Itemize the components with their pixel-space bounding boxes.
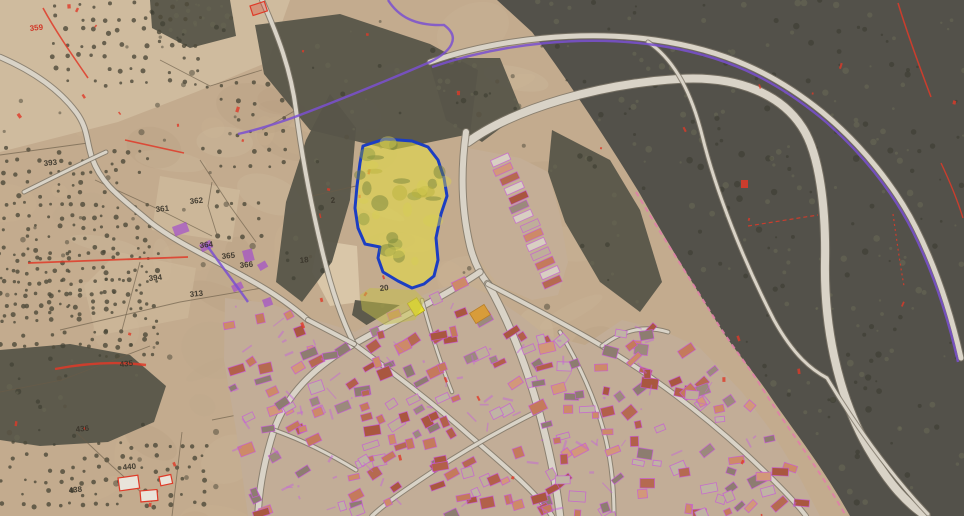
tree-dot [544, 304, 550, 310]
olive-tree-dot [169, 445, 172, 448]
building [377, 330, 385, 339]
olive-tree-dot [5, 304, 9, 308]
olive-tree-dot [92, 6, 95, 9]
scrub-speckle [839, 464, 846, 471]
olive-tree-dot [58, 290, 61, 293]
scrub-speckle [703, 4, 706, 7]
olive-tree-dot [192, 456, 197, 461]
scrub-speckle [862, 499, 868, 505]
olive-tree-dot [104, 170, 107, 173]
scrub-speckle [864, 84, 869, 89]
olive-tree-dot [119, 441, 122, 444]
olive-tree-dot [132, 18, 137, 23]
olive-tree-dot [151, 505, 156, 510]
scrub-speckle [717, 127, 720, 130]
urban-cadastral-line [691, 504, 692, 508]
olive-tree-dot [14, 293, 17, 296]
olive-tree-dot [47, 300, 51, 304]
tree-dot [463, 271, 466, 274]
olive-tree-dot [81, 226, 85, 230]
parcel-vegetation-blotch [372, 211, 380, 220]
olive-tree-dot [144, 16, 148, 20]
olive-tree-dot [80, 202, 85, 207]
scrub-speckle [709, 211, 715, 217]
olive-tree-dot [118, 466, 122, 470]
olive-tree-dot [105, 355, 108, 358]
parcel-vegetation-blotch [392, 185, 407, 201]
scrub-speckle [918, 404, 922, 408]
scrub-speckle [633, 142, 637, 146]
building [615, 329, 627, 338]
scrub-speckle [904, 256, 907, 259]
olive-tree-dot [13, 172, 17, 176]
olive-tree-dot [105, 299, 110, 304]
scrub-speckle [590, 261, 595, 266]
scrub-speckle [697, 164, 704, 171]
scrub-speckle [882, 190, 885, 193]
olive-tree-dot [80, 45, 83, 48]
scrub-speckle [344, 79, 348, 83]
tree-dot [61, 253, 65, 257]
olive-tree-dot [282, 160, 286, 164]
olive-tree-dot [83, 456, 87, 460]
scrub-speckle [794, 0, 801, 6]
olive-tree-dot [142, 337, 147, 342]
scrub-speckle [854, 381, 857, 384]
olive-tree-dot [135, 289, 138, 292]
olive-tree-dot [199, 16, 202, 19]
olive-tree-dot [73, 305, 78, 310]
scrub-speckle [880, 128, 886, 134]
olive-tree-dot [217, 149, 222, 154]
olive-tree-dot [23, 201, 26, 204]
olive-tree-dot [94, 453, 98, 457]
building [553, 437, 561, 444]
olive-tree-dot [185, 2, 189, 6]
olive-tree-dot [105, 233, 110, 238]
olive-tree-dot [97, 442, 100, 445]
scrub-speckle [646, 66, 650, 70]
olive-tree-dot [2, 245, 6, 249]
scrub-speckle [876, 388, 882, 394]
olive-tree-dot [116, 252, 120, 256]
urban-cadastral-line [527, 462, 539, 463]
tree-dot [467, 266, 472, 271]
scrub-speckle [917, 149, 921, 153]
olive-tree-dot [27, 214, 31, 218]
olive-tree-dot [201, 502, 206, 507]
scrub-speckle [932, 243, 937, 248]
scrub-speckle [193, 21, 197, 25]
olive-tree-dot [11, 456, 15, 460]
olive-tree-dot [68, 162, 72, 166]
scrub-speckle [833, 2, 839, 8]
scrub-speckle [875, 380, 877, 382]
olive-tree-dot [72, 237, 75, 240]
red-tick-mark [302, 50, 304, 53]
scrub-speckle [607, 279, 609, 281]
tree-dot [167, 354, 173, 360]
olive-tree-dot [138, 171, 141, 174]
parcel-vegetation-blotch [386, 232, 398, 243]
olive-tree-dot [52, 345, 56, 349]
scrub-speckle [771, 189, 777, 195]
scrub-speckle [776, 149, 782, 155]
parcel-label: 435 [119, 359, 134, 369]
tree-dot [131, 217, 135, 221]
scrub-speckle [856, 324, 859, 327]
scrub-speckle [857, 26, 860, 29]
scrub-speckle [949, 342, 951, 344]
tree-dot [125, 45, 128, 48]
scrub-speckle [842, 67, 849, 74]
scrub-speckle [636, 100, 639, 103]
olive-tree-dot [145, 302, 148, 305]
olive-tree-dot [133, 313, 137, 317]
olive-tree-dot [259, 234, 263, 238]
olive-tree-dot [155, 341, 159, 345]
olive-tree-dot [60, 469, 65, 474]
scrub-speckle [863, 121, 868, 126]
scrub-speckle [689, 203, 695, 209]
scrub-speckle [930, 143, 935, 148]
scrub-speckle [36, 399, 40, 403]
scrub-speckle [325, 63, 330, 68]
scrub-speckle [176, 37, 178, 39]
olive-tree-dot [168, 71, 171, 74]
olive-tree-dot [141, 265, 144, 268]
scrub-speckle [940, 22, 942, 24]
scrub-speckle [160, 21, 165, 26]
scrub-speckle [828, 416, 831, 419]
olive-tree-dot [2, 228, 5, 231]
parcel-vegetation-blotch [362, 181, 371, 195]
scrub-speckle [642, 186, 646, 190]
red-tick-mark [812, 92, 814, 94]
olive-tree-dot [37, 281, 41, 285]
scrub-speckle [924, 428, 930, 434]
red-tick-mark [149, 503, 152, 507]
scrub-speckle [901, 83, 906, 88]
scrub-speckle [445, 78, 451, 84]
scrub-speckle [910, 486, 913, 489]
red-outlined-building [118, 475, 140, 491]
scrub-speckle [508, 81, 510, 83]
scrub-speckle [151, 11, 155, 15]
olive-tree-dot [71, 466, 75, 470]
scrub-speckle [443, 90, 446, 93]
olive-tree-dot [53, 14, 57, 18]
olive-tree-dot [137, 247, 140, 250]
scrub-speckle [764, 105, 770, 111]
tree-dot [213, 429, 219, 435]
olive-tree-dot [57, 150, 62, 155]
olive-tree-dot [79, 279, 83, 283]
scrub-speckle [791, 235, 795, 239]
olive-tree-dot [78, 190, 82, 194]
olive-tree-dot [14, 302, 18, 306]
scrub-speckle [691, 129, 697, 135]
tree-dot [63, 405, 67, 409]
scrub-speckle [686, 157, 693, 164]
scrub-speckle [775, 236, 777, 238]
olive-tree-dot [190, 444, 194, 448]
tree-dot [161, 46, 164, 49]
scrub-speckle [830, 397, 836, 403]
scrub-speckle [635, 5, 637, 7]
scrub-speckle [38, 405, 42, 409]
olive-tree-dot [121, 159, 126, 164]
scrub-speckle [787, 167, 791, 171]
scrub-speckle [929, 402, 935, 408]
olive-tree-dot [182, 44, 186, 48]
scrub-speckle [734, 181, 740, 187]
scrub-speckle [889, 247, 892, 250]
scrub-speckle [774, 18, 779, 23]
scrub-speckle [399, 112, 402, 115]
olive-tree-dot [91, 480, 96, 485]
scrub-speckle [436, 85, 441, 90]
olive-tree-dot [58, 183, 61, 186]
scrub-speckle [818, 409, 822, 413]
olive-tree-dot [141, 68, 146, 73]
olive-tree-dot [49, 172, 52, 175]
olive-tree-dot [202, 478, 207, 483]
olive-tree-dot [81, 494, 84, 497]
olive-tree-dot [157, 252, 160, 255]
scrub-speckle [182, 33, 185, 36]
building [574, 510, 581, 516]
scrub-speckle [629, 108, 631, 110]
red-outlined-building [159, 475, 173, 486]
scrub-speckle [788, 248, 791, 251]
olive-tree-dot [127, 277, 132, 282]
olive-tree-dot [77, 317, 82, 322]
olive-tree-dot [127, 271, 131, 275]
tree-dot [511, 74, 515, 78]
building [480, 496, 496, 509]
scrub-speckle [892, 107, 895, 110]
scrub-speckle [897, 158, 903, 164]
scrub-speckle [220, 5, 223, 8]
olive-tree-dot [70, 315, 73, 318]
building [637, 448, 653, 460]
olive-tree-dot [142, 353, 146, 357]
scrub-speckle [286, 259, 289, 262]
scrub-speckle [911, 129, 917, 135]
olive-tree-dot [46, 488, 51, 493]
building [678, 467, 690, 477]
olive-tree-dot [158, 15, 163, 20]
scrub-speckle [773, 286, 778, 291]
olive-tree-dot [72, 172, 75, 175]
olive-tree-dot [70, 213, 74, 217]
olive-tree-dot [13, 280, 16, 283]
olive-tree-dot [49, 293, 54, 298]
olive-tree-dot [76, 52, 81, 57]
olive-tree-dot [81, 19, 84, 22]
scrub-speckle [847, 360, 854, 367]
olive-tree-dot [104, 270, 109, 275]
scrub-speckle [876, 330, 878, 332]
parcel-label: 20 [379, 283, 389, 293]
scrub-speckle [756, 226, 762, 232]
olive-tree-dot [203, 490, 207, 494]
tree-dot [112, 289, 115, 292]
urban-cadastral-line [423, 360, 424, 362]
olive-tree-dot [205, 444, 209, 448]
scrub-speckle [632, 52, 636, 56]
parcel-vegetation-blotch [371, 195, 388, 211]
tree-dot [20, 237, 26, 243]
olive-tree-dot [119, 42, 124, 47]
olive-tree-dot [81, 503, 86, 508]
olive-tree-dot [15, 259, 19, 263]
scrub-speckle [837, 49, 842, 54]
scrub-speckle [378, 64, 382, 68]
olive-tree-dot [92, 311, 96, 315]
scrub-speckle [472, 63, 477, 68]
olive-tree-dot [257, 201, 260, 204]
olive-tree-dot [118, 278, 121, 281]
tree-dot [5, 293, 10, 298]
olive-tree-dot [168, 78, 172, 82]
scrub-speckle [876, 138, 879, 141]
scrub-speckle [53, 443, 56, 446]
olive-tree-dot [64, 292, 69, 297]
olive-tree-dot [25, 452, 29, 456]
scrub-speckle [645, 146, 652, 153]
parcel-label: 362 [189, 196, 204, 206]
olive-tree-dot [251, 113, 254, 116]
red-tick-mark [457, 91, 460, 95]
olive-tree-dot [111, 311, 114, 314]
scrub-speckle [889, 349, 894, 354]
scrub-speckle [816, 307, 819, 310]
olive-tree-dot [103, 343, 108, 348]
tree-dot [234, 115, 237, 118]
olive-tree-dot [157, 30, 162, 35]
scrub-speckle [169, 28, 173, 32]
scrub-speckle [58, 395, 63, 400]
parcel-label: 393 [43, 158, 58, 168]
scrub-speckle [762, 364, 767, 369]
olive-tree-dot [94, 203, 98, 207]
tree-dot [224, 202, 230, 208]
olive-tree-dot [194, 83, 197, 86]
olive-tree-dot [87, 344, 91, 348]
olive-tree-dot [81, 267, 84, 270]
olive-tree-dot [38, 195, 42, 199]
olive-tree-dot [143, 238, 148, 243]
scrub-speckle [738, 151, 745, 158]
tree-dot [249, 243, 255, 249]
scrub-speckle [659, 63, 665, 69]
olive-tree-dot [103, 290, 107, 294]
olive-tree-dot [16, 213, 20, 217]
parcel-vegetation-blotch [360, 148, 376, 162]
scrub-speckle [784, 302, 789, 307]
scrub-speckle [884, 357, 888, 361]
olive-tree-dot [283, 148, 287, 152]
scrub-speckle [855, 450, 860, 455]
building [223, 321, 235, 330]
scrub-speckle [612, 192, 617, 197]
olive-tree-dot [139, 307, 142, 310]
olive-tree-dot [166, 468, 170, 472]
parcel-label: 364 [199, 240, 214, 250]
parcel-vegetation-blotch [358, 213, 370, 226]
scrub-speckle [765, 199, 770, 204]
building [685, 390, 699, 400]
parcel-label: 438 [68, 485, 83, 495]
olive-tree-dot [26, 180, 30, 184]
olive-tree-dot [47, 256, 51, 260]
scrub-speckle [822, 89, 828, 95]
tree-dot [137, 457, 142, 462]
scrub-speckle [787, 145, 790, 148]
olive-tree-dot [36, 267, 40, 271]
olive-tree-dot [193, 501, 197, 505]
scrub-speckle [633, 11, 637, 15]
scrub-speckle [312, 67, 314, 69]
tree-dot [33, 226, 36, 229]
scrub-speckle [806, 381, 810, 385]
olive-tree-dot [66, 269, 70, 273]
parcel-vegetation-blotch [365, 161, 378, 169]
scrub-speckle [549, 2, 553, 6]
olive-tree-dot [90, 292, 94, 296]
tree-dot [19, 99, 23, 103]
scrub-speckle [854, 122, 860, 128]
olive-tree-dot [103, 330, 108, 335]
scrub-speckle [743, 238, 746, 241]
olive-tree-dot [129, 343, 133, 347]
olive-tree-dot [219, 165, 222, 168]
olive-tree-dot [27, 247, 30, 250]
scrub-speckle [851, 306, 856, 311]
olive-tree-dot [253, 102, 257, 106]
scrub-speckle [680, 112, 686, 118]
scrub-speckle [15, 389, 21, 395]
scrub-speckle [473, 91, 478, 96]
scrub-speckle [583, 80, 587, 84]
olive-tree-dot [21, 334, 25, 338]
olive-tree-dot [216, 190, 220, 194]
map-canvas: 3593933623613643653663943132182043543644… [0, 0, 964, 516]
parcel-vegetation-blotch [425, 196, 441, 200]
scrub-speckle [206, 6, 211, 11]
olive-tree-dot [11, 312, 16, 317]
olive-tree-dot [49, 306, 54, 311]
tree-dot [58, 111, 61, 114]
parcel-vegetation-blotch [411, 257, 418, 266]
olive-tree-dot [100, 215, 103, 218]
parcel-label: 18 [299, 255, 309, 265]
olive-tree-dot [45, 271, 48, 274]
olive-tree-dot [50, 54, 55, 59]
olive-tree-dot [264, 132, 268, 136]
scrub-speckle [947, 28, 949, 30]
olive-tree-dot [102, 41, 106, 45]
olive-tree-dot [93, 279, 97, 283]
olive-tree-dot [281, 129, 285, 133]
scrub-speckle [221, 22, 227, 28]
scrub-speckle [892, 36, 896, 40]
olive-tree-dot [151, 353, 154, 356]
olive-tree-dot [69, 202, 73, 206]
scrub-speckle [911, 307, 914, 310]
